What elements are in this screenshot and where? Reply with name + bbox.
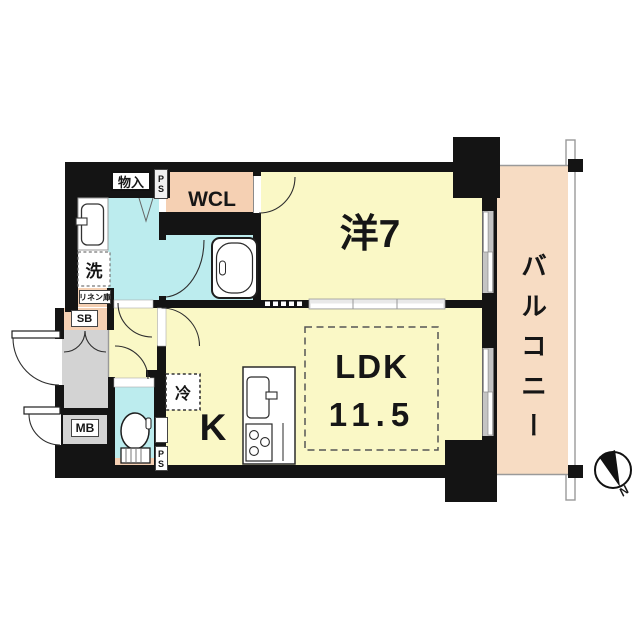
partition-panel [311, 304, 443, 309]
column-top-right [453, 137, 500, 198]
ldk-window-panel [488, 392, 493, 435]
small-label-box [155, 417, 168, 443]
wall-bottom [55, 465, 445, 478]
pipe-space-label-top: PS [154, 169, 168, 199]
kitchen-counter [243, 367, 295, 464]
meter-box-door-arc [29, 414, 60, 445]
stove-icon [246, 424, 272, 461]
wall-meter-box-top [62, 408, 108, 415]
linen-label: リネン庫 [79, 290, 111, 304]
bedroom-window-panel [484, 212, 489, 252]
faucet-icon [76, 218, 87, 225]
column-bottom-right [445, 440, 497, 502]
shoe-box-label: SB [71, 310, 98, 327]
kitchen-label: K [194, 407, 232, 449]
bathroom-doorway [159, 240, 166, 296]
wall-toilet-left [108, 377, 115, 465]
laundry-label: 洗 [79, 254, 109, 284]
wall-wcl-bottom [159, 212, 261, 235]
ldk-size-label: 11.5 [310, 397, 434, 433]
storage-label: 物入 [111, 171, 151, 191]
entry-door-arc [13, 338, 59, 385]
entry-floor [62, 330, 108, 408]
vanity-unit [76, 198, 108, 250]
entry-door-leaf [12, 331, 60, 338]
meter-box-label: MB [71, 419, 99, 437]
toilet-doorway [114, 378, 154, 387]
fridge-label: 冷 [166, 376, 200, 408]
balcony-label: バルコニー [516, 236, 550, 468]
wall-bottom-left-block [55, 445, 108, 467]
ldk-doorway [158, 308, 167, 346]
wall-ldk-door-stub [157, 345, 166, 377]
bathtub-icon [212, 238, 257, 298]
wcl-label: WCL [182, 188, 242, 212]
bedroom-window-panel [488, 252, 493, 292]
bedroom-doorway [254, 176, 262, 213]
balcony-post-top [568, 159, 583, 172]
balcony-post-bottom [568, 465, 583, 478]
washroom-floor [108, 196, 159, 302]
washroom-doorway [114, 300, 153, 308]
kitchen-faucet-icon [266, 392, 277, 399]
floor-plan: 物入 PS WCL 洋7 LDK 11.5 K 冷 洗 リネン庫 SB MB P… [0, 0, 640, 640]
ldk-label: LDK [320, 349, 424, 385]
toilet-icon [121, 413, 151, 463]
wall-left [65, 162, 78, 312]
meter-box-door-leaf [24, 407, 60, 414]
pipe-space-label-bottom: PS [155, 446, 168, 471]
bedroom-label: 洋7 [318, 207, 422, 255]
ldk-window-panel [484, 349, 489, 392]
